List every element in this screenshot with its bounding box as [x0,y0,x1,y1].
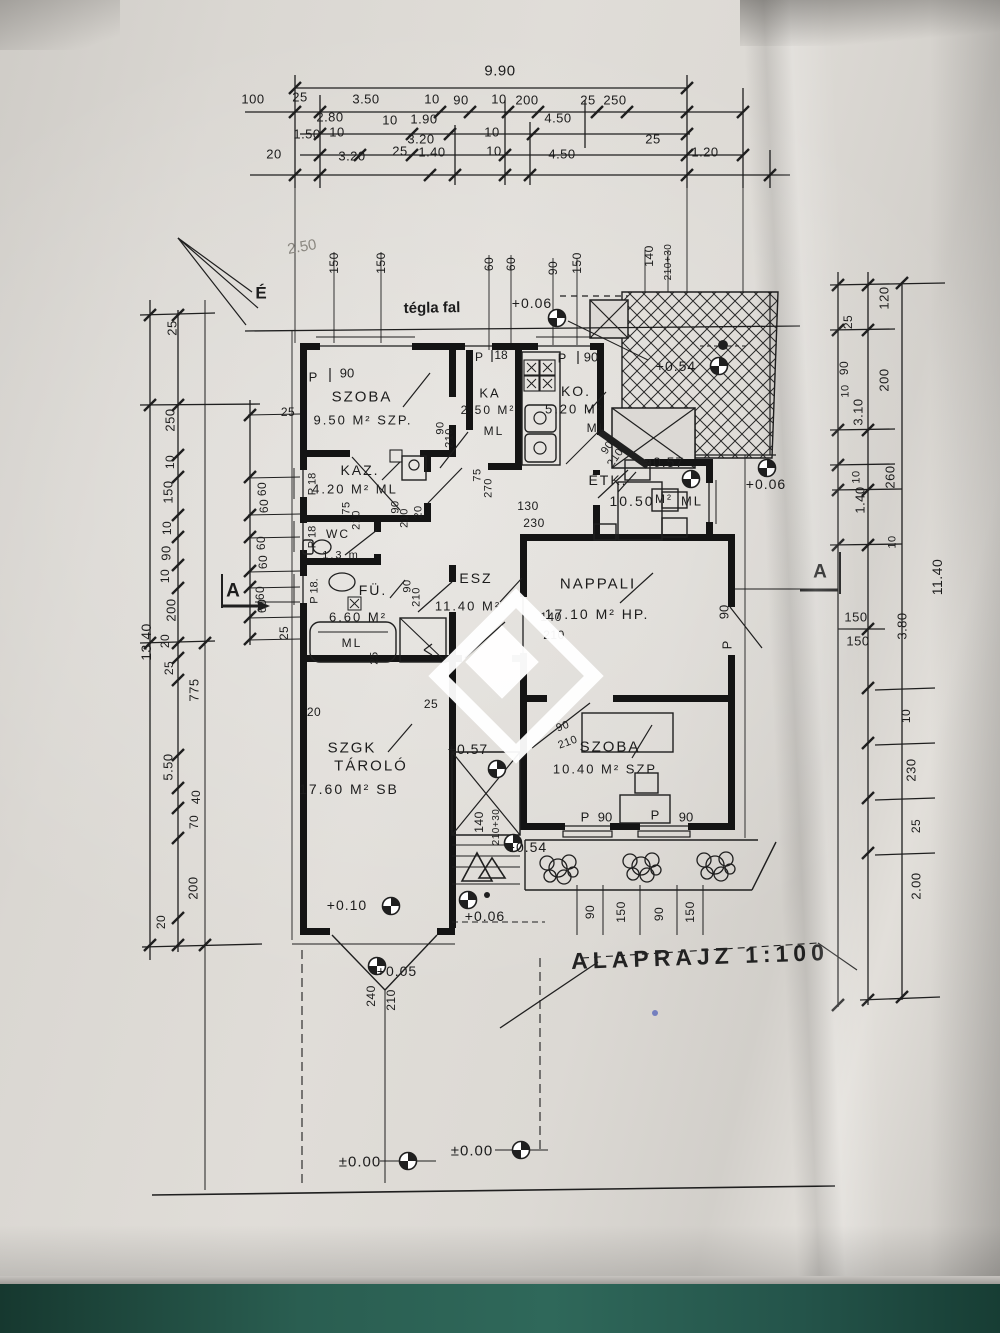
room-label: 4.20 M² ML [312,483,398,496]
handwritten-label: tégla fal [404,300,461,316]
room-label: SZGK [328,741,377,756]
elevation-label: +0.54 [507,840,547,854]
opening-spec-label: P [651,809,660,822]
dimension-label: 200 [878,368,891,391]
dimension-label: 3.10 [852,398,865,425]
dimension-label: 25 [842,315,854,329]
elevation-label: +0.05 [377,964,417,978]
dimension-label: 90 [453,94,468,107]
elevation-label: +0.57 [644,455,684,469]
dimension-label: 90 [547,261,559,275]
dimension-label: 10 [161,521,173,535]
dimension-label: 4.50 [548,148,575,161]
dimension-label: 70 [188,815,200,829]
room-label: 10.40 M² SZP [553,763,657,776]
dimension-label: 60 [255,536,267,550]
dimension-label: 200 [187,876,200,899]
dimension-label: 60 [257,555,269,569]
dimension-label: 20 [266,148,281,161]
dimension-label: 90 [584,905,596,919]
dimension-label: 13.40 [139,623,153,661]
elevation-label: +0.06 [512,296,552,310]
room-label: SZOBA [580,740,641,755]
dimension-label: 10 [841,384,852,397]
opening-spec-label: P [721,641,734,650]
dimension-label: 10 [888,535,899,548]
opening-spec-label: P [309,371,318,384]
dimension-label: 25 [278,626,290,640]
dimension-label: 120 [878,286,891,309]
dimension-label: 10 [164,455,176,469]
dimension-label: 270 [484,478,495,498]
dimension-label: 20 [307,706,321,718]
dimension-label: 210 [543,629,565,641]
dimension-label: 10 [484,126,499,139]
room-label: 10.50 [609,494,654,508]
dimension-label: 230 [523,517,545,529]
dimension-label: 250 [603,94,626,107]
room-label: M² [655,493,673,505]
dimension-label: 240 [365,985,377,1007]
dimension-label: 210 [352,510,363,530]
dimension-label: 25 [424,698,438,710]
room-label: ML [681,495,703,508]
dimension-label: 11.40 [930,559,944,596]
opening-spec-label: P [581,811,590,824]
dimension-label: 60 [505,257,517,271]
dimension-label: 25 [910,819,922,833]
room-label: KO. [561,384,591,398]
room-label: WC [326,528,350,540]
dimension-label: 150 [571,252,583,274]
room-label: 17.60 M² SB [299,782,399,796]
dimension-label: 25 [370,651,381,664]
dimension-label: 210+30 [492,809,502,846]
room-label: ML [587,422,608,434]
plan-linework [0,0,1000,1333]
elevation-label: +0.57 [448,742,488,756]
dimension-label: 2.80 [316,111,343,124]
elevation-label: +0.10 [327,898,367,912]
room-label: 11.40 M² [435,600,501,613]
room-label: KAZ. [340,463,379,477]
dimension-label: 150 [328,252,340,274]
dimension-label: 100 [241,93,264,106]
dimension-label: 60 [256,482,268,496]
dimension-label: 140 [540,611,562,623]
dimension-label: 150 [684,901,696,923]
dimension-label: 20 [159,634,171,648]
handwritten-label: É [255,285,266,302]
dimension-label: 25 [163,661,175,675]
dimension-label: 1.40 [418,146,445,159]
dimension-label: 90 [160,545,173,560]
room-label: NAPPALI [560,577,636,592]
dimension-label: 1.50 [293,128,320,141]
room-label: TÁROLÓ [334,759,408,774]
elevation-label: +0.06 [465,909,505,923]
dimension-label: 4.50 [544,112,571,125]
dimension-label: 3.80 [896,612,909,639]
dimension-label: 10 [382,114,397,127]
dimension-label: 210+30 [664,244,674,281]
dimension-label: 20 [414,505,425,518]
opening-spec-label: 90 [340,367,354,380]
room-label: 2.50 M² [461,404,516,416]
dimension-label: 140 [643,245,655,267]
dimension-label: 5.50 [162,753,175,780]
elevation-label: +0.54 [656,359,696,373]
dimension-label: 10 [424,93,439,106]
opening-spec-label: 90 [584,351,598,364]
dimension-label: 60 [256,599,268,613]
dimension-label: 25 [392,145,407,158]
dimension-label: 200 [515,94,538,107]
dimension-label: 1.40 [854,486,867,513]
dimension-label: 210 [385,989,397,1011]
handwritten-label: A [226,582,240,601]
elevation-label: +0.06 [746,477,786,491]
room-label: 6.60 M² [329,611,387,624]
dimension-label: 150 [375,252,387,274]
dimension-label: 3.50 [352,93,379,106]
room-label: ESZ [459,571,492,585]
opening-spec-label: P 18. [310,578,321,604]
dimension-label: 90 [838,361,850,375]
dimension-label: 60 [483,257,495,271]
dimension-label: 210 [412,587,423,607]
dimension-label: 200 [165,598,178,621]
dimension-label: 10 [159,569,171,583]
photographed-floor-plan: 9.90100253.50109010200252502.80101.904.5… [0,0,1000,1333]
dimension-label: 210 [400,508,411,528]
dimension-label: 260 [884,465,897,488]
dimension-label: 10 [852,470,863,483]
dimension-label: 25 [292,91,307,104]
dimension-label: 25 [166,320,179,335]
opening-spec-label: P [558,352,567,365]
handwritten-label: A [813,563,827,582]
dimension-label: 60 [258,499,270,513]
room-label: SZOBA [332,390,393,405]
dimension-label: 25 [645,133,660,146]
dimension-label: 90 [653,907,665,921]
opening-spec-label: 90 [598,811,612,824]
dimension-label: 210 [445,428,456,448]
dimension-label: 150 [846,635,869,648]
opening-spec-label: 18 [494,349,507,361]
table-surface [0,1284,1000,1333]
ink-dot [652,1010,658,1016]
room-label: ML [484,425,505,437]
dimension-label: 3.20 [338,150,365,163]
elevation-label: ±0.00 [339,1155,381,1170]
dimension-label: 150 [615,901,627,923]
room-label: FÜ. [359,583,388,597]
room-label: KA [479,387,500,400]
elevation-label: ±0.00 [451,1144,493,1159]
opening-spec-label: 90 [718,605,731,619]
room-label: ÉTK. [588,473,627,487]
dimension-label: 9.90 [484,64,515,79]
room-label: 9.50 M² SZP. [314,414,413,427]
dimension-label: 1.20 [691,146,718,159]
dimension-label: 2.00 [910,872,923,899]
dimension-label: 1.90 [410,113,437,126]
dimension-label: 140 [473,811,485,833]
dimension-label: 10 [329,126,344,139]
dimension-label: 150 [844,611,867,624]
dimension-label: 10 [486,145,501,158]
dimension-label: 150 [162,480,175,503]
opening-spec-label: 90 [679,811,693,824]
dimension-label: 130 [517,500,539,512]
room-label: 1.3 m [322,551,360,562]
room-label: 5.20 M² [545,403,603,416]
dimension-label: 20 [155,915,167,929]
dimension-label: 230 [905,758,918,781]
dimension-label: 10 [900,709,912,723]
dimension-label: 25 [281,406,295,418]
dimension-label: 775 [188,678,201,701]
room-label: ML [342,637,363,649]
dimension-label: 25 [580,94,595,107]
dimension-label: 10 [491,93,506,106]
dimension-label: 250 [164,408,177,431]
opening-spec-label: P 18 [308,526,319,548]
dimension-label: 40 [190,790,202,804]
opening-spec-label: P [475,351,483,363]
